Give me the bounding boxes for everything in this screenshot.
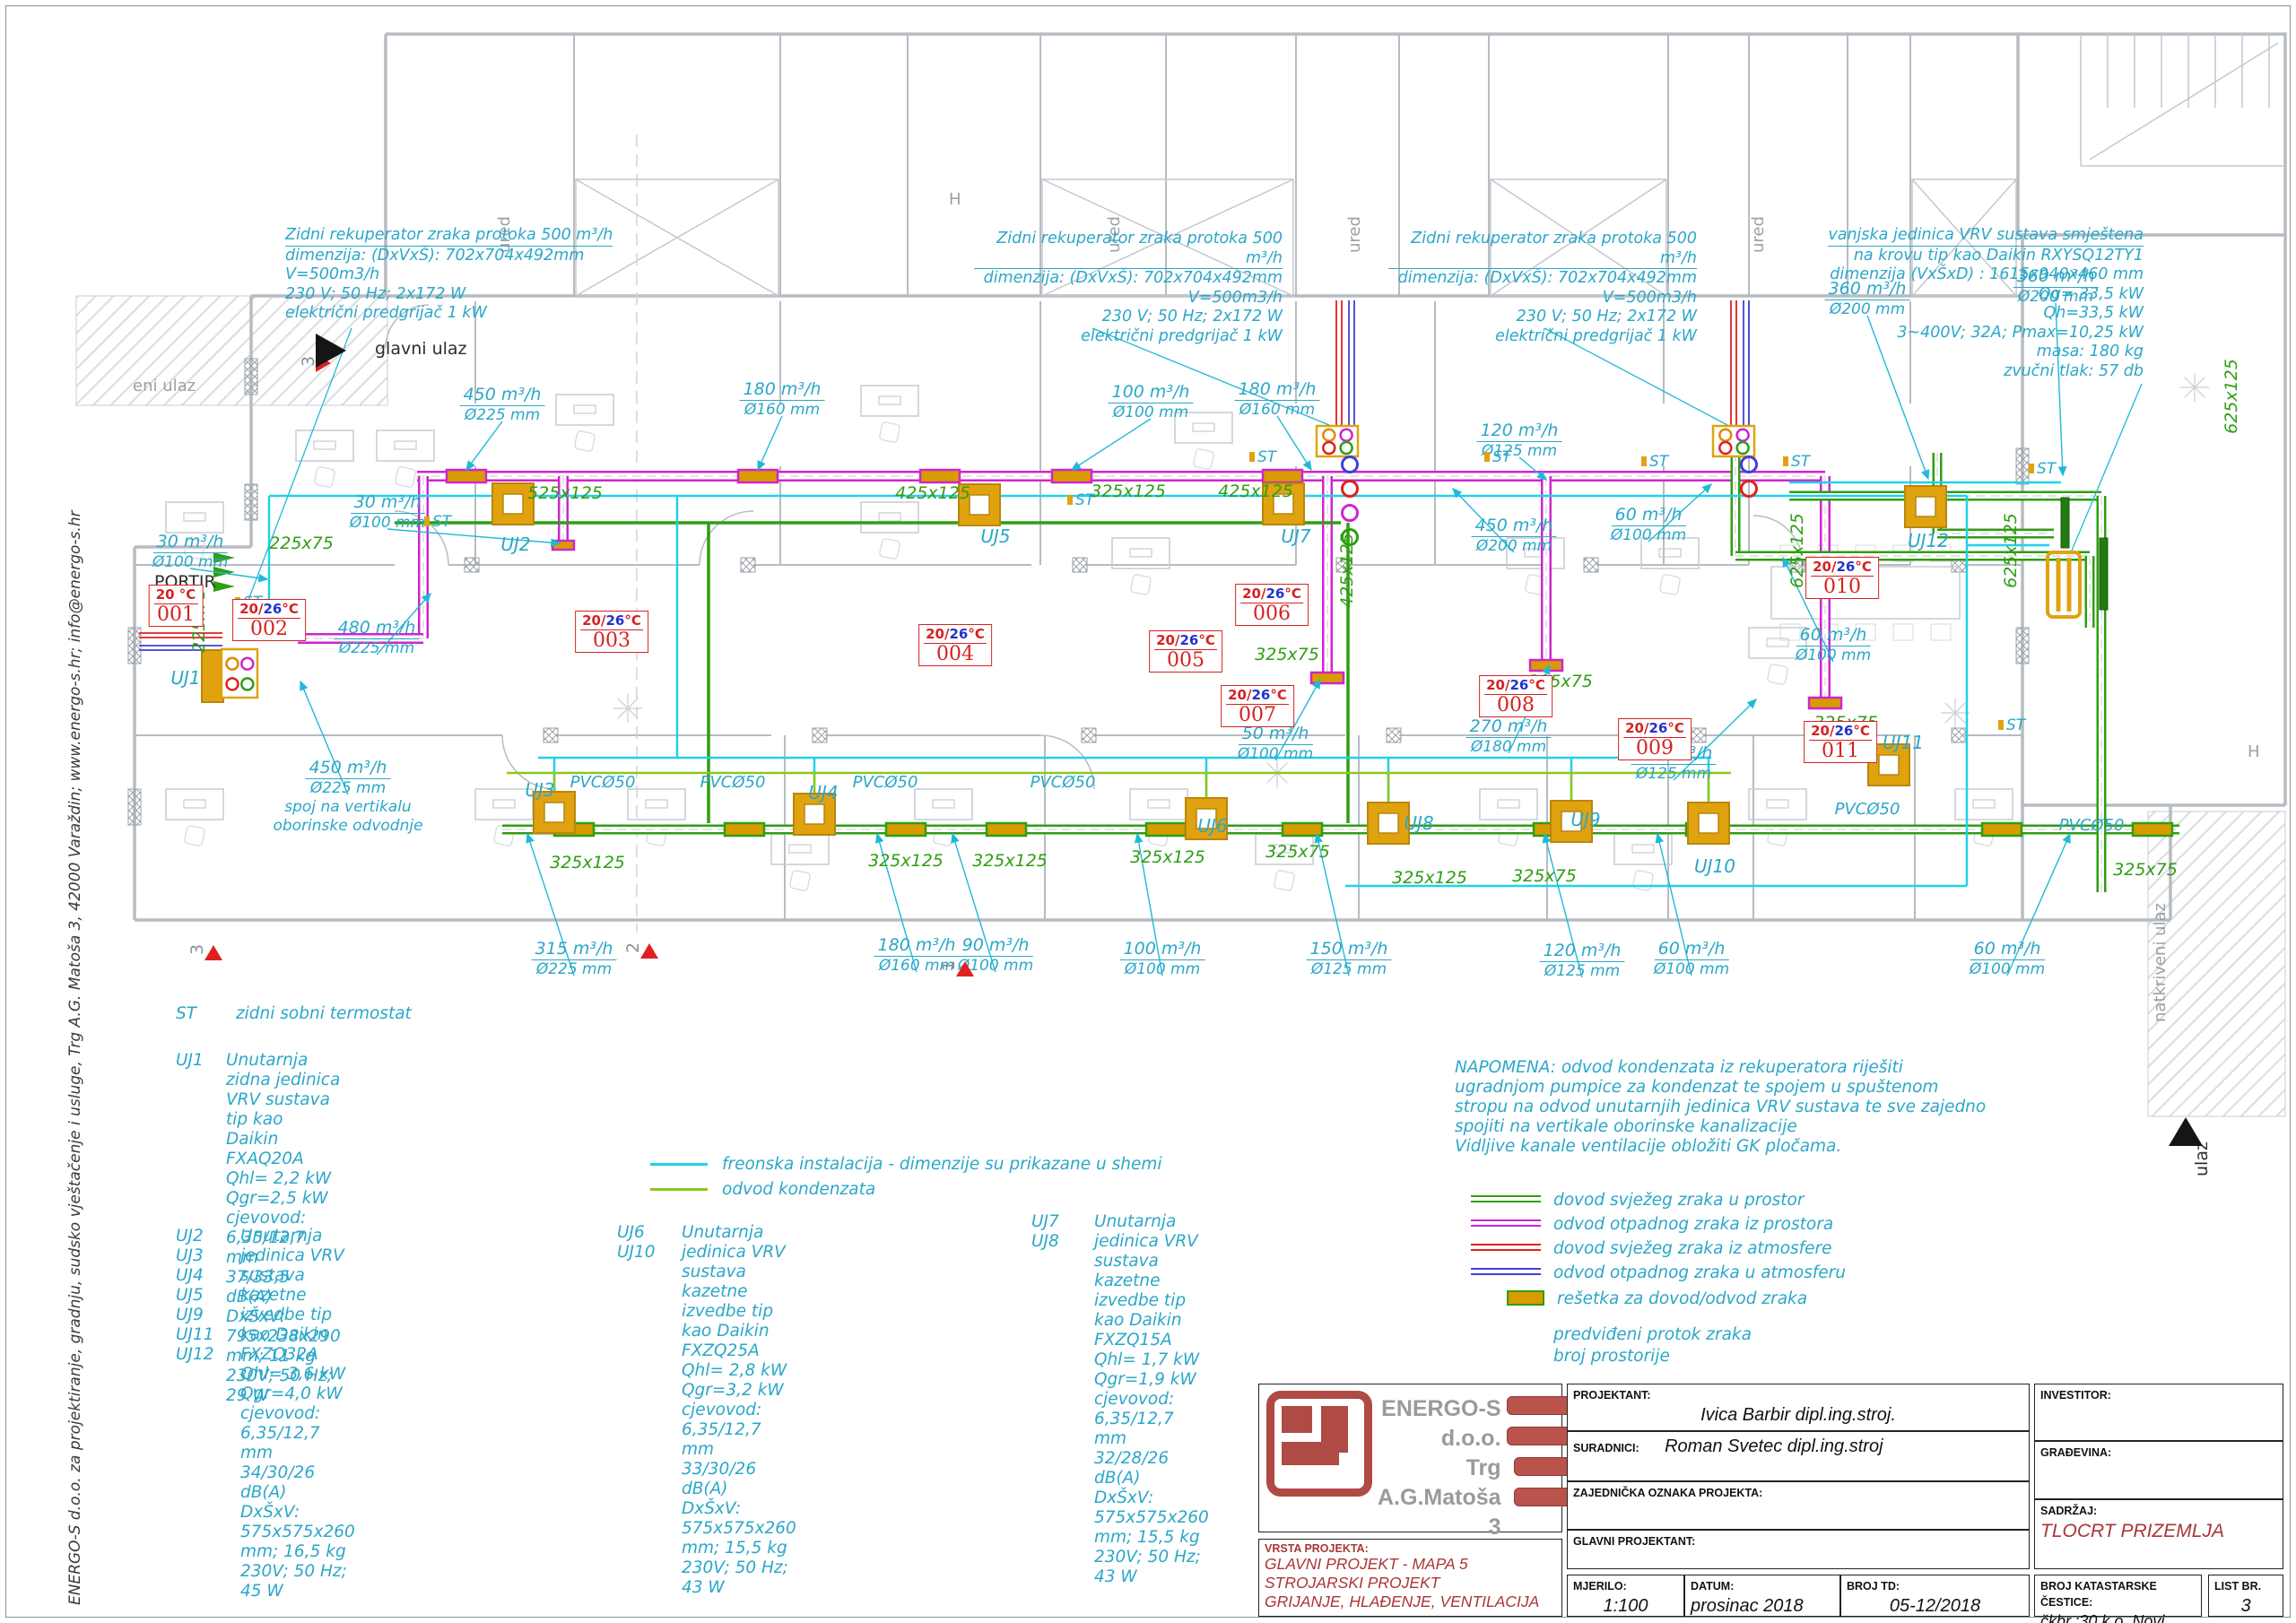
scale-cell: MJERILO: 1:100 [1567, 1575, 1684, 1617]
duct-size-label: 325x75 [1255, 645, 1319, 664]
section-marker: 1 [944, 956, 974, 980]
unit-label: UJ1 [170, 667, 200, 689]
flow-label: 450 m³/hØ200 mm [1472, 516, 1557, 556]
plan-text-label: H [949, 190, 961, 209]
legend-extra-item: predviđeni protok zraka [1553, 1325, 1752, 1345]
duct-size-label: 425x125 [895, 483, 970, 503]
project-type-label: VRSTA PROJEKTA: [1265, 1542, 1556, 1555]
flow-label: 30 m³/hØ100 mm [152, 533, 228, 572]
legend-thermostat: ST zidni sobni termostat [176, 1004, 412, 1024]
plan-text-label: glavni ulaz [375, 339, 467, 359]
project-type-lines: GLAVNI PROJEKT - MAPA 5 STROJARSKI PROJE… [1265, 1555, 1556, 1611]
pipe-legend-item: freonska instalacija - dimenzije su prik… [650, 1155, 1162, 1175]
duct-size-label: 325x125 [972, 851, 1048, 871]
flow-label: 450 m³/hØ225 mm [460, 386, 545, 425]
content-cell: SADRŽAJ: TLOCRT PRIZEMLJA [2034, 1499, 2283, 1569]
pipe-legend-item: odvod kondenzata [650, 1180, 875, 1200]
building-label: GRAĐEVINA: [2040, 1446, 2111, 1459]
duct-size-label: 625x125 [2001, 513, 2021, 588]
flow-label: 315 m³/hØ225 mm [532, 940, 617, 979]
sheet-number-label: LIST BR. [2214, 1580, 2261, 1593]
collaborators-cell: SURADNICI: Roman Svetec dipl.ing.stroj [1567, 1431, 2030, 1481]
duct-size-label: 325x125 [1392, 868, 1467, 888]
unit-label: UJ7 [1281, 525, 1310, 547]
content-value: TLOCRT PRIZEMLJA [2040, 1521, 2277, 1542]
unit-label: UJ9 [1570, 809, 1600, 830]
chief-designer-cell: GLAVNI PROJEKTANT: [1567, 1530, 2030, 1569]
equipment-annotation: Zidni rekuperator zraka protoka 500 m³/h… [1388, 230, 1697, 346]
thermostat-icon [2029, 464, 2034, 473]
pvc-pipe-label: PVCØ50 [853, 773, 918, 792]
duct-size-label: 225x75 [269, 534, 334, 553]
duct-swatch-icon [1471, 1244, 1541, 1251]
unit-label: UJ5 [980, 525, 1010, 547]
scale-value: 1:100 [1573, 1596, 1678, 1617]
cadastre-cell: BROJ KATASTARSKE ČESTICE: čkbr.:30 k.o. … [2034, 1575, 2202, 1617]
thermostat-icon [1484, 452, 1490, 462]
plan-text-label: ured [1749, 216, 1768, 253]
investor-label: INVESTITOR: [2040, 1389, 2111, 1402]
flow-label: 480 m³/hØ225 mm [335, 619, 420, 658]
thermostat-icon [1067, 495, 1073, 505]
thermostat-icon [424, 516, 430, 526]
flow-label: 60 m³/hØ100 mm [1970, 940, 2045, 979]
td-number-value: 05-12/2018 [1847, 1596, 2023, 1617]
flow-label: 180 m³/hØ160 mm [1235, 380, 1320, 420]
unit-label: UJ10 [1694, 855, 1735, 877]
plan-text-label: eni ulaz [133, 377, 196, 395]
flow-label: 180 m³/hØ160 mm [740, 380, 825, 420]
project-code-cell: ZAJEDNIČKA OZNAKA PROJEKTA: [1567, 1481, 2030, 1530]
duct-swatch-icon [1471, 1219, 1541, 1227]
flow-label: 60 m³/hØ100 mm [1654, 940, 1729, 979]
legend-st-text: zidni sobni termostat [236, 1004, 412, 1023]
designer-label: PROJEKTANT: [1573, 1389, 1651, 1402]
logo-bars-icon [1501, 1396, 1577, 1518]
unit-label: UJ8 [1404, 812, 1433, 834]
investor-cell: INVESTITOR: [2034, 1384, 2283, 1441]
flow-label: 270 m³/hØ180 mm [1466, 717, 1552, 757]
unit-label: UJ3 [525, 779, 554, 801]
thermostat-label: ST [1067, 491, 1094, 509]
legend-extra-item: broj prostorije [1553, 1347, 1670, 1367]
room-badge: 20/26°C009 [1618, 718, 1692, 760]
equipment-annotation: Zidni rekuperator zraka protoka 500 m³/h… [974, 230, 1283, 346]
pvc-pipe-label: PVCØ50 [1031, 773, 1096, 792]
section-marker: 2 [628, 938, 658, 962]
unit-label: UJ2 [500, 534, 530, 555]
plan-text-label: H [2248, 742, 2260, 761]
flow-label: 30 m³/hØ100 mm [350, 493, 425, 533]
collaborators-value: Roman Svetec dipl.ing.stroj [1665, 1436, 1883, 1457]
td-number-label: BROJ TD: [1847, 1580, 1900, 1593]
sheet-number-cell: LIST BR. 3 [2208, 1575, 2283, 1617]
pipe-swatch-icon [650, 1163, 708, 1166]
collaborators-label: SURADNICI: [1573, 1442, 1639, 1454]
flow-label: 100 m³/hØ100 mm [1109, 383, 1194, 422]
equipment-annotation: vanjska jedinica VRV sustava smještenana… [1774, 226, 2144, 381]
thermostat-label: ST [1249, 448, 1276, 466]
pipe-swatch-icon [650, 1188, 708, 1191]
room-badge: 20 °C001 [149, 585, 204, 627]
room-badge: 20/26°C008 [1479, 675, 1552, 717]
duct-size-label: 325x125 [868, 851, 944, 871]
thermostat-label: ST [1641, 453, 1668, 471]
section-marker: 3 [192, 940, 222, 964]
duct-size-label: 325x75 [1265, 842, 1330, 862]
unit-label: UJ12 [1908, 530, 1949, 551]
duct-size-label: 425x125 [1218, 482, 1293, 501]
pvc-pipe-label: PVCØ50 [570, 773, 636, 792]
duct-size-label: 625x125 [1787, 513, 1807, 588]
entrance-arrow-icon [316, 334, 346, 368]
thermostat-icon [1641, 456, 1647, 466]
duct-legend-item: odvod otpadnog zraka iz prostora [1471, 1215, 1833, 1235]
designer-cell: PROJEKTANT: Ivica Barbir dipl.ing.stroj. [1567, 1384, 2030, 1431]
thermostat-label: ST [2029, 460, 2056, 478]
unit-label: UJ11 [1883, 732, 1924, 753]
flow-label: 60 m³/hØ100 mm [1611, 506, 1686, 545]
duct-size-label: 325x125 [550, 853, 625, 872]
room-badge: 20/26°C006 [1235, 584, 1309, 626]
duct-swatch-icon [1471, 1268, 1541, 1275]
project-code-label: ZAJEDNIČKA OZNAKA PROJEKTA: [1573, 1487, 1762, 1499]
flow-label: 120 m³/hØ125 mm [1540, 942, 1625, 981]
unit-label: UJ4 [808, 782, 838, 803]
company-logo-cell: ENERGO-S d.o.o. Trg A.G.Matoša 3 Varaždi… [1258, 1384, 1562, 1532]
flow-label: 100 m³/hØ100 mm [1120, 940, 1205, 979]
date-cell: DATUM: prosinac 2018 [1684, 1575, 1840, 1617]
energo-s-logo-icon [1266, 1391, 1372, 1497]
plan-text-label: ulaz [2192, 1141, 2212, 1176]
thermostat-label: ST [424, 513, 451, 531]
duct-size-label: 625x125 [2222, 359, 2241, 434]
project-type-line1: GLAVNI PROJEKT - MAPA 5 [1265, 1555, 1556, 1574]
room-badge: 20/26°C011 [1804, 721, 1877, 763]
project-type-line3: GRIJANJE, HLAĐENJE, VENTILACIJA [1265, 1593, 1556, 1611]
equipment-annotation: Zidni rekuperator zraka protoka 500 m³/h… [285, 226, 617, 324]
duct-size-label: 325x75 [2113, 860, 2178, 880]
thermostat-label: ST [1783, 453, 1810, 471]
td-number-cell: BROJ TD: 05-12/2018 [1840, 1575, 2030, 1617]
room-badge: 20/26°C010 [1805, 557, 1879, 599]
duct-size-label: 525x125 [527, 483, 603, 503]
drawing-sheet: ENERGO-S d.o.o. za projektiranje, gradnj… [0, 0, 2296, 1623]
note-block: NAPOMENA: odvod kondenzata iz rekuperato… [1455, 1058, 1986, 1157]
duct-size-label: 325x125 [1130, 847, 1205, 867]
project-type-cell: VRSTA PROJEKTA: GLAVNI PROJEKT - MAPA 5 … [1258, 1539, 1562, 1617]
designer-value: Ivica Barbir dipl.ing.stroj. [1573, 1405, 2023, 1426]
chief-designer-label: GLAVNI PROJEKTANT: [1573, 1535, 1695, 1548]
company-address: Trg A.G.Matoša 3 [1378, 1454, 1501, 1542]
thermostat-label: ST [1484, 448, 1511, 466]
room-badge: 20/26°C007 [1221, 685, 1294, 727]
cadastre-value: čkbr.:30 k.o. Novi Marof [2040, 1612, 2196, 1623]
date-label: DATUM: [1691, 1580, 1734, 1593]
company-name: ENERGO-S d.o.o. [1378, 1394, 1501, 1454]
project-type-line2: STROJARSKI PROJEKT [1265, 1574, 1556, 1593]
entrance-arrow-icon [2169, 1117, 2203, 1146]
room-badge: 20/26°C003 [575, 611, 648, 653]
pvc-pipe-label: PVCØ50 [700, 773, 766, 792]
plan-text-label: natkriveni ulaz [2151, 903, 2170, 1022]
date-value: prosinac 2018 [1691, 1596, 1834, 1617]
grille-swatch-icon [1507, 1290, 1544, 1306]
duct-swatch-icon [1471, 1195, 1541, 1202]
content-label: SADRŽAJ: [2040, 1505, 2097, 1517]
room-badge: 20/26°C005 [1149, 630, 1222, 673]
plan-text-label: ured [1345, 216, 1364, 253]
duct-legend-item: odvod otpadnog zraka u atmosferu [1471, 1263, 1846, 1283]
duct-size-label: 425x125 [1337, 533, 1357, 608]
unit-label: UJ6 [1197, 815, 1227, 837]
flow-label: 450 m³/hØ225 mmspoj na vertikaluoborinsk… [273, 759, 422, 836]
thermostat-icon [1249, 452, 1255, 462]
thermostat-icon [1783, 456, 1788, 466]
cadastre-label: BROJ KATASTARSKE ČESTICE: [2040, 1580, 2157, 1609]
flow-label: 50 m³/hØ100 mm [1238, 725, 1313, 764]
sheet-number-value: 3 [2214, 1596, 2277, 1617]
legend-st-symbol: ST [176, 1004, 196, 1023]
thermostat-label: ST [1998, 716, 2025, 734]
duct-legend-item: dovod svježeg zraka iz atmosfere [1471, 1239, 1832, 1259]
grille-legend-item: rešetka za dovod/odvod zraka [1507, 1289, 1807, 1309]
room-badge: 20/26°C002 [232, 599, 306, 641]
flow-label: 60 m³/hØ100 mm [1796, 626, 1871, 665]
duct-size-label: 325x75 [1512, 866, 1577, 886]
scale-label: MJERILO: [1573, 1580, 1627, 1593]
duct-size-label: 325x125 [1091, 482, 1166, 501]
pvc-pipe-label: PVCØ50 [2059, 816, 2125, 835]
duct-legend-item: dovod svježeg zraka u prostor [1471, 1191, 1804, 1211]
pvc-pipe-label: PVCØ50 [1835, 800, 1900, 819]
flow-label: 150 m³/hØ125 mm [1307, 940, 1392, 979]
room-badge: 20/26°C004 [918, 624, 992, 666]
building-cell: GRAĐEVINA: [2034, 1441, 2283, 1499]
thermostat-icon [1998, 720, 2004, 730]
